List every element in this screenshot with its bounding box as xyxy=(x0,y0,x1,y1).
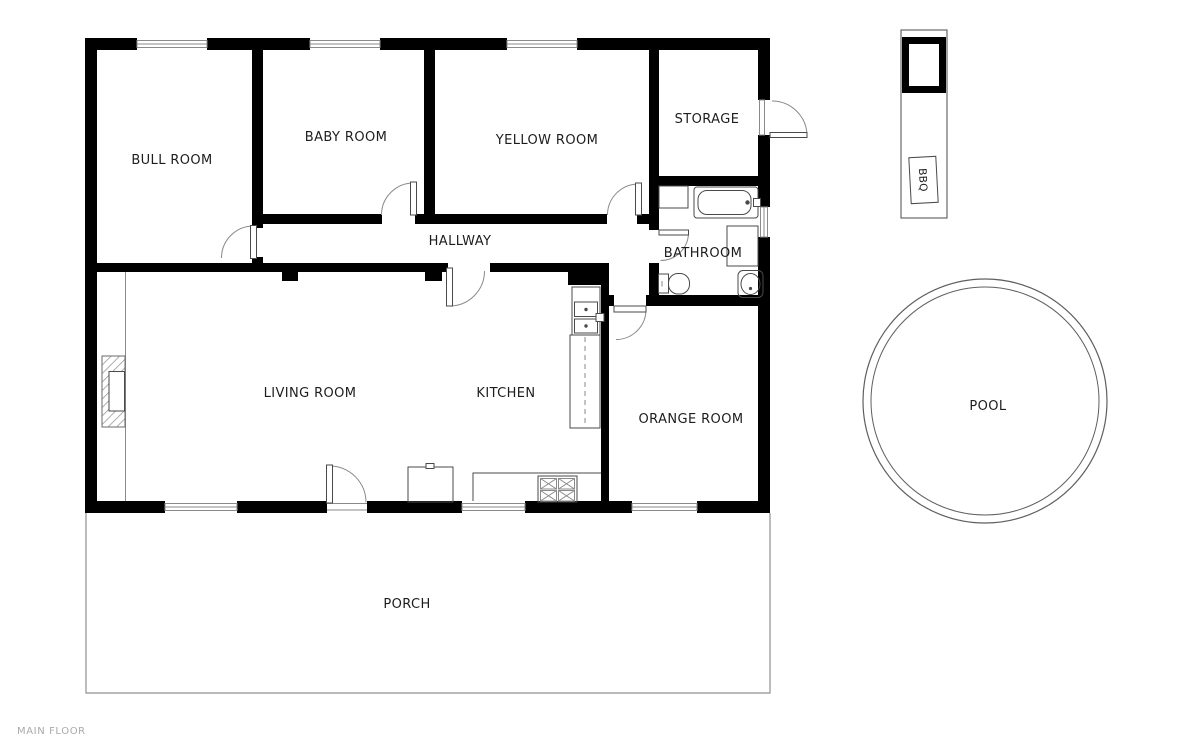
wall-bottom-seg xyxy=(697,501,770,513)
walls xyxy=(85,38,770,513)
room-label-baby: BABY ROOM xyxy=(305,130,387,145)
room-label-porch: PORCH xyxy=(383,597,430,612)
wall-yellow-storage xyxy=(649,44,659,230)
wall-storage-bath xyxy=(659,176,758,186)
room-label-hallway: HALLWAY xyxy=(429,234,492,249)
fireplace xyxy=(102,272,126,501)
kitchen-counter-bottom xyxy=(473,473,601,501)
room-label-kitchen: KITCHEN xyxy=(476,386,535,401)
window-orange xyxy=(632,501,697,513)
wall-right-seg xyxy=(758,135,770,207)
room-label-yellow: YELLOW ROOM xyxy=(495,133,599,148)
wall-orange-top-seg xyxy=(601,295,614,306)
wall-hall-top-seg xyxy=(415,214,607,224)
window-bathroom xyxy=(758,207,770,237)
kitchen-island xyxy=(408,464,453,503)
window-bull xyxy=(137,38,207,50)
toilet xyxy=(659,274,690,295)
bathroom-fixtures xyxy=(659,186,764,298)
floor-plan-canvas: BBQ BULL ROOM BABY ROOM YELLOW ROOM STOR… xyxy=(0,0,1200,750)
pool-label: POOL xyxy=(969,399,1007,414)
door-kitchen xyxy=(447,268,485,306)
window-living-1 xyxy=(165,501,237,513)
wall-bottom-seg xyxy=(85,501,165,513)
kitchen-counter-right xyxy=(570,335,600,428)
room-label-storage: STORAGE xyxy=(675,112,740,127)
wall-right-seg xyxy=(758,237,770,513)
wall-kitchen-corner-chunk xyxy=(568,272,609,285)
door-orange-room xyxy=(614,306,646,340)
bbq-grill-inner xyxy=(909,44,939,86)
bath-cabinet xyxy=(659,186,688,208)
wall-stub xyxy=(425,272,442,281)
room-label-living: LIVING ROOM xyxy=(264,386,357,401)
wall-stub xyxy=(282,272,298,281)
room-labels: BULL ROOM BABY ROOM YELLOW ROOM STORAGE … xyxy=(17,112,1007,737)
window-yellow xyxy=(507,38,577,50)
outdoor: BBQ xyxy=(86,30,1107,693)
bathtub xyxy=(694,187,761,218)
faucet xyxy=(596,314,604,322)
stove xyxy=(538,476,577,502)
wall-hall-top-seg xyxy=(252,214,382,224)
floor-title: MAIN FLOOR xyxy=(17,726,86,737)
wall-bottom-seg xyxy=(367,501,462,513)
window-baby xyxy=(310,38,380,50)
kitchen-sink-unit xyxy=(572,287,604,335)
room-label-bull: BULL ROOM xyxy=(131,153,212,168)
wall-right-seg xyxy=(758,38,770,100)
wall-bottom-seg xyxy=(525,501,632,513)
room-label-bathroom: BATHROOM xyxy=(664,246,742,261)
bbq-structure: BBQ xyxy=(901,30,947,218)
firebox xyxy=(109,372,125,412)
wall-left xyxy=(85,38,97,513)
door-yellow-room xyxy=(608,183,642,215)
window-kitchen xyxy=(462,501,525,513)
door-bull-room xyxy=(222,226,257,259)
room-label-orange: ORANGE ROOM xyxy=(639,412,744,427)
floor-plan-svg: BBQ BULL ROOM BABY ROOM YELLOW ROOM STOR… xyxy=(0,0,1200,750)
wall-baby-yellow xyxy=(424,44,435,224)
door-baby-room xyxy=(382,182,417,215)
door-porch-living xyxy=(327,465,368,513)
wall-bath-left-seg xyxy=(649,263,659,295)
bbq-label: BBQ xyxy=(916,168,929,192)
doors xyxy=(222,100,808,513)
tub-valve xyxy=(754,199,761,207)
wall-hall-bottom-seg xyxy=(490,263,601,272)
door-storage-exterior xyxy=(758,100,807,138)
wall-bull-baby xyxy=(252,44,263,224)
wall-hall-bottom-seg xyxy=(97,263,448,272)
windows xyxy=(137,38,770,513)
wall-bottom-seg xyxy=(237,501,327,513)
